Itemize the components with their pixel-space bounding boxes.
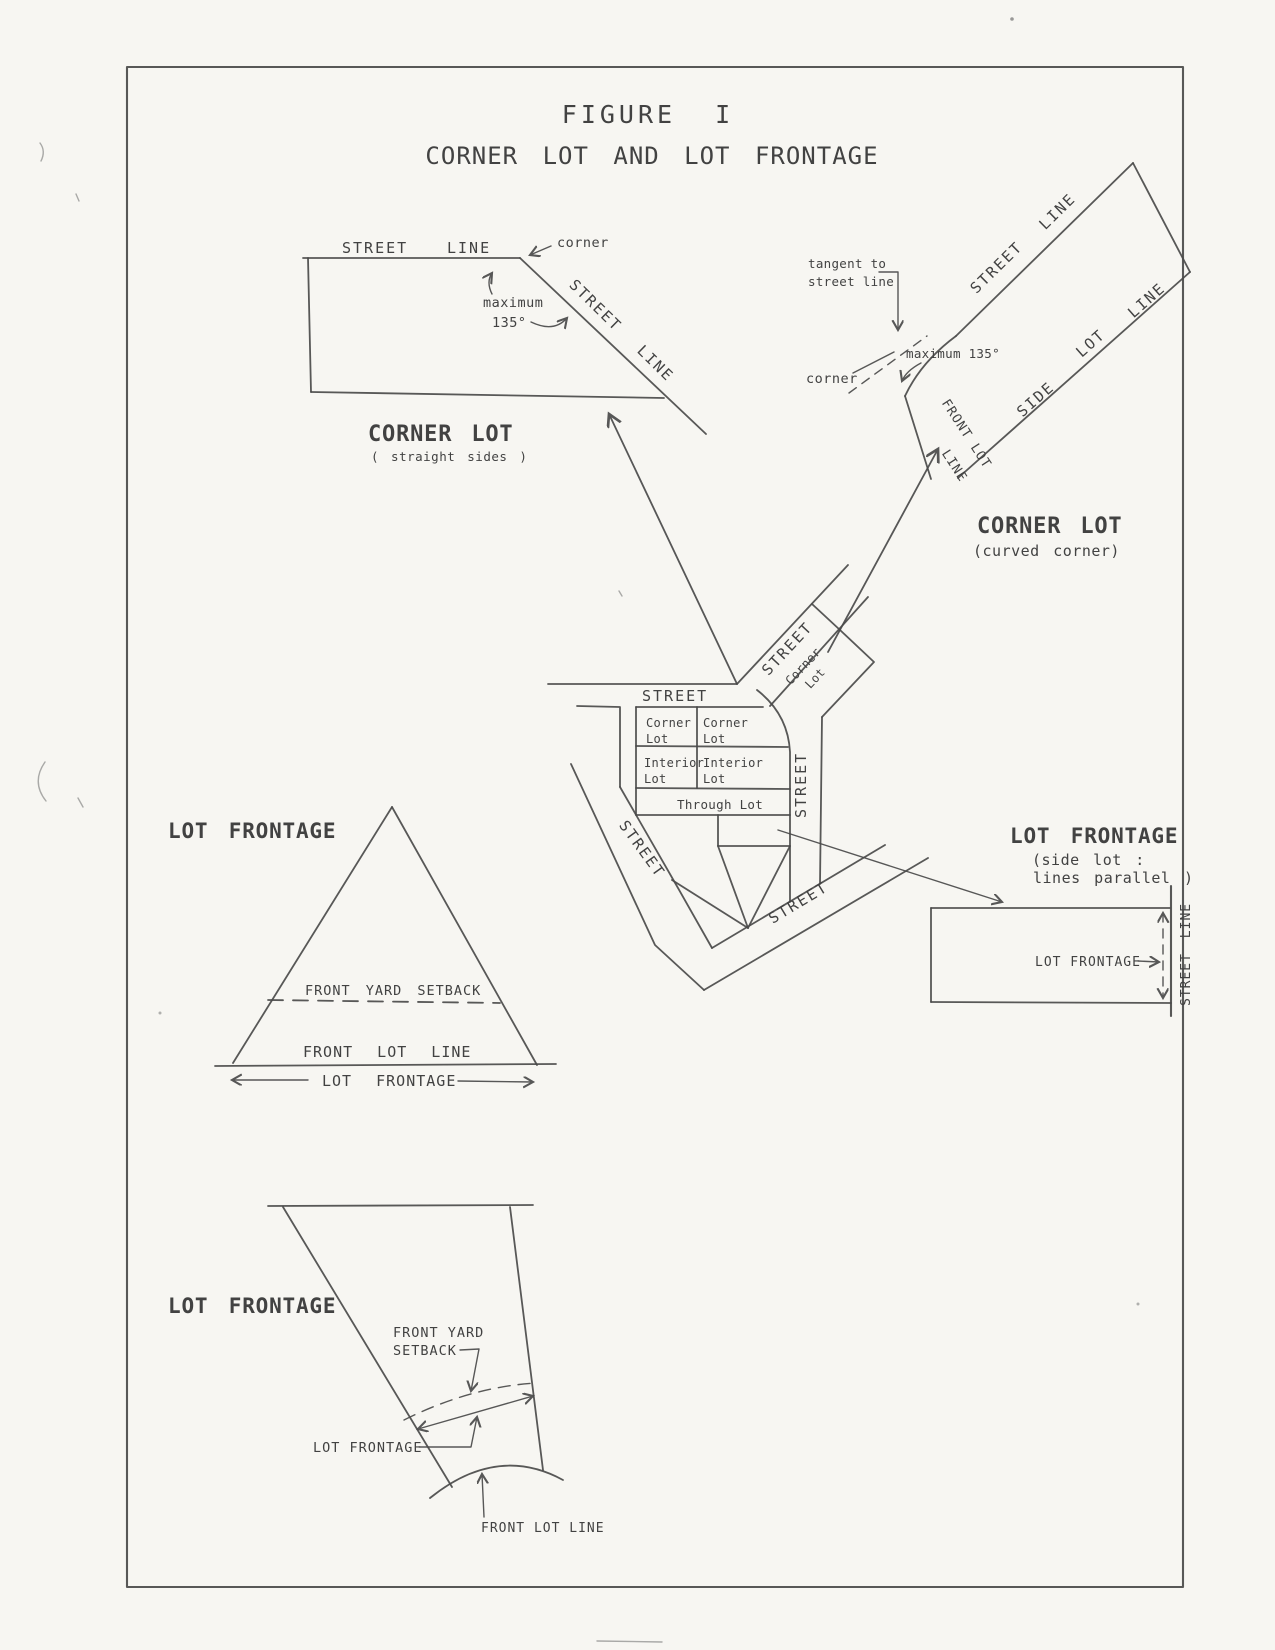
scan-mark (40, 143, 43, 161)
corner-leader-line (853, 352, 894, 373)
frontage-dim-arrow-right (458, 1081, 533, 1082)
setback-label-line1: FRONT YARD (393, 1325, 484, 1341)
street-right-label: STREET (792, 752, 810, 818)
lot-side-left (308, 258, 311, 392)
tangent-dashed-line (849, 336, 927, 393)
scan-mark (38, 762, 46, 801)
corner-lot-straight-subtitle: ( straight sides ) (371, 449, 527, 464)
street-top-lower-edge (577, 706, 620, 787)
corner-lot-straight-diagram: STREET LINE corner maximum 135° STREET L… (303, 235, 706, 464)
lot-bottom-edge (931, 1002, 1171, 1003)
callout-arrow-to-straight-corner (609, 414, 737, 684)
scan-mark (619, 591, 622, 596)
callout-arrow-to-curved-corner (828, 449, 938, 652)
street-line-label: STREET LINE (1179, 903, 1194, 1006)
frontage-leader-arrow (419, 1417, 477, 1447)
side-lot-subtitle-line2: lines parallel ) (1033, 869, 1194, 887)
lot-end-line (1133, 163, 1190, 272)
corner-lot-parcel-outline (822, 630, 874, 717)
through-lot-label: Through Lot (677, 797, 763, 812)
scan-speck (1137, 1303, 1140, 1306)
corner-label: corner (806, 371, 858, 387)
front-lot-line-leader-arrow (482, 1474, 484, 1517)
maximum-label: maximum (483, 295, 543, 311)
cell-corner2-line2: Lot (703, 732, 726, 746)
setback-label-line2: SETBACK (393, 1343, 457, 1359)
cell-corner1-line1: Corner (646, 716, 691, 730)
line-label: LINE (1035, 190, 1079, 234)
line-label: LINE (447, 239, 491, 257)
wedge-lot-line-2 (718, 846, 748, 928)
side-line-label: LINE (1124, 279, 1169, 322)
scan-mark (76, 194, 79, 201)
cell-interior2-line2: Lot (703, 772, 726, 786)
scan-mark (78, 798, 83, 807)
side-label: SIDE (1013, 378, 1058, 421)
corner-label: corner (557, 235, 609, 251)
front-lot-line (215, 1064, 556, 1066)
street-right-outer-edge (820, 717, 822, 884)
lot-rear-line (311, 392, 664, 398)
scan-mark (597, 1641, 662, 1642)
curved-corner-arc (905, 336, 956, 396)
frontage-label: LOT FRONTAGE (322, 1072, 456, 1090)
corner-lot-curved-diagram: tangent to street line STREET LINE maxim… (806, 163, 1190, 560)
triangle-title: LOT FRONTAGE (168, 819, 336, 843)
angle-value-label: 135° (492, 315, 527, 331)
lot-rear-edge (268, 1205, 533, 1206)
street-diagonal-label: STREET (566, 276, 626, 335)
front-lot-line-label: FRONT LOT LINE (303, 1043, 471, 1061)
street-line-diagonal (520, 258, 706, 434)
lot-frontage-triangle-diagram: LOT FRONTAGE FRONT YARD SETBACK FRONT LO… (168, 807, 556, 1090)
street-top-label: STREET (642, 687, 708, 705)
corner-lot-curved-title: CORNER LOT (977, 514, 1122, 539)
corner-leader-arrow (530, 246, 551, 255)
row-divider-1 (636, 746, 788, 747)
scanned-figure-page: FIGURE I CORNER LOT AND LOT FRONTAGE STR… (0, 0, 1275, 1650)
street-label: STREET (342, 239, 408, 257)
front-lot-label-row2: LINE (938, 447, 970, 485)
triangle-left-side (233, 807, 392, 1063)
front-lot-line-label: FRONT LOT LINE (481, 1521, 605, 1536)
line-diagonal-label: LINE (633, 342, 677, 386)
lot-frontage-side-lot-diagram: LOT FRONTAGE (side lot : lines parallel … (931, 824, 1194, 1016)
cell-corner2-line1: Corner (703, 716, 748, 730)
maximum-arc-arrow (902, 363, 921, 381)
corner-lot-curved-subtitle: (curved corner) (973, 542, 1120, 560)
side-lot-title: LOT FRONTAGE (1010, 824, 1178, 848)
street-right-inner-edge (757, 690, 790, 902)
street-line-upper (956, 163, 1133, 336)
curved-street-title: LOT FRONTAGE (168, 1294, 336, 1318)
frontage-label: LOT FRONTAGE (313, 1440, 423, 1456)
cell-interior2-line1: Interior (703, 756, 763, 770)
central-block-diagram: STREET STREET Corner Lot Corner Lot Corn… (548, 414, 1002, 990)
cell-interior1-line2: Lot (644, 772, 667, 786)
cell-corner1-line2: Lot (646, 732, 669, 746)
side-lot-subtitle-line1: (side lot : (1032, 851, 1145, 869)
angle-arc-arrow (531, 318, 567, 327)
maximum-angle-label: maximum 135° (906, 346, 1000, 361)
parcel-boundary-tick (812, 604, 840, 630)
figure-drawing: FIGURE I CORNER LOT AND LOT FRONTAGE STR… (0, 0, 1275, 1650)
setback-leader-arrow (460, 1349, 479, 1391)
row-divider-2 (636, 788, 790, 789)
lot-frontage-curved-street-diagram: LOT FRONTAGE FRONT YARD SETBACK LOT FRON… (168, 1205, 605, 1536)
maximum-leader-arrow (489, 273, 492, 294)
triangle-right-side (392, 807, 537, 1065)
frontage-pointer-arrow (1138, 961, 1159, 962)
frontage-label: LOT FRONTAGE (1035, 955, 1141, 970)
wedge-lot-line-1 (672, 880, 748, 928)
curved-front-lot-line (430, 1466, 563, 1498)
tangent-label-line2: street line (808, 274, 894, 289)
lot-right-side (510, 1207, 543, 1470)
figure-title: FIGURE I CORNER LOT AND LOT FRONTAGE (425, 100, 878, 170)
street-bottom-outer-edge (704, 858, 928, 990)
cell-interior1-line1: Interior (644, 756, 704, 770)
scan-speck (159, 1012, 162, 1015)
front-lot-line (905, 396, 931, 479)
front-yard-setback-dashed-line (268, 1000, 500, 1003)
setback-label: FRONT YARD SETBACK (305, 983, 481, 999)
figure-caption: CORNER LOT AND LOT FRONTAGE (425, 142, 878, 170)
corner-lot-straight-title: CORNER LOT (368, 422, 513, 447)
tangent-label-line1: tangent to (808, 256, 886, 271)
street-label: STREET (967, 238, 1027, 297)
lot-label: LOT (1072, 326, 1109, 361)
scan-speck (1010, 17, 1014, 21)
figure-number: FIGURE I (562, 100, 734, 129)
